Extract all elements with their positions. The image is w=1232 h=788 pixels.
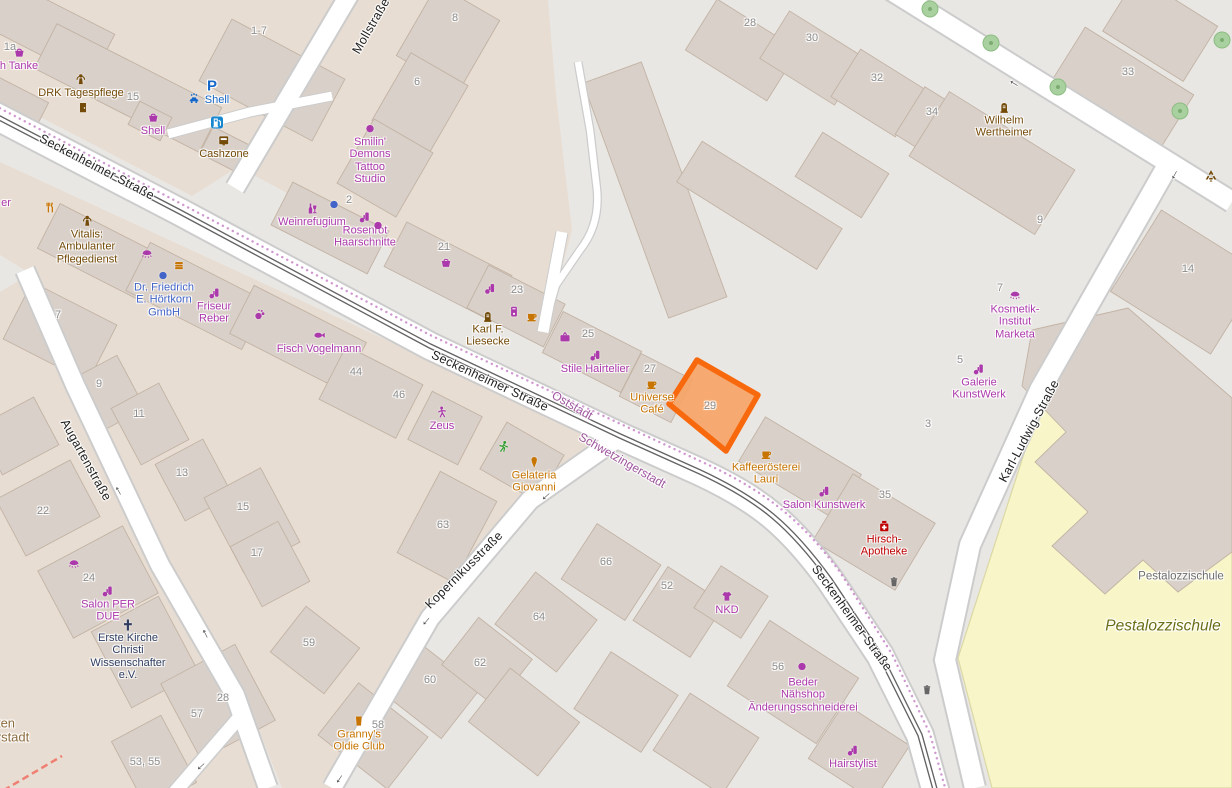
map-viewport[interactable]: Seckenheimer StraßeSeckenheimer StraßeSe… [0,0,1232,788]
map-canvas [0,0,1232,788]
